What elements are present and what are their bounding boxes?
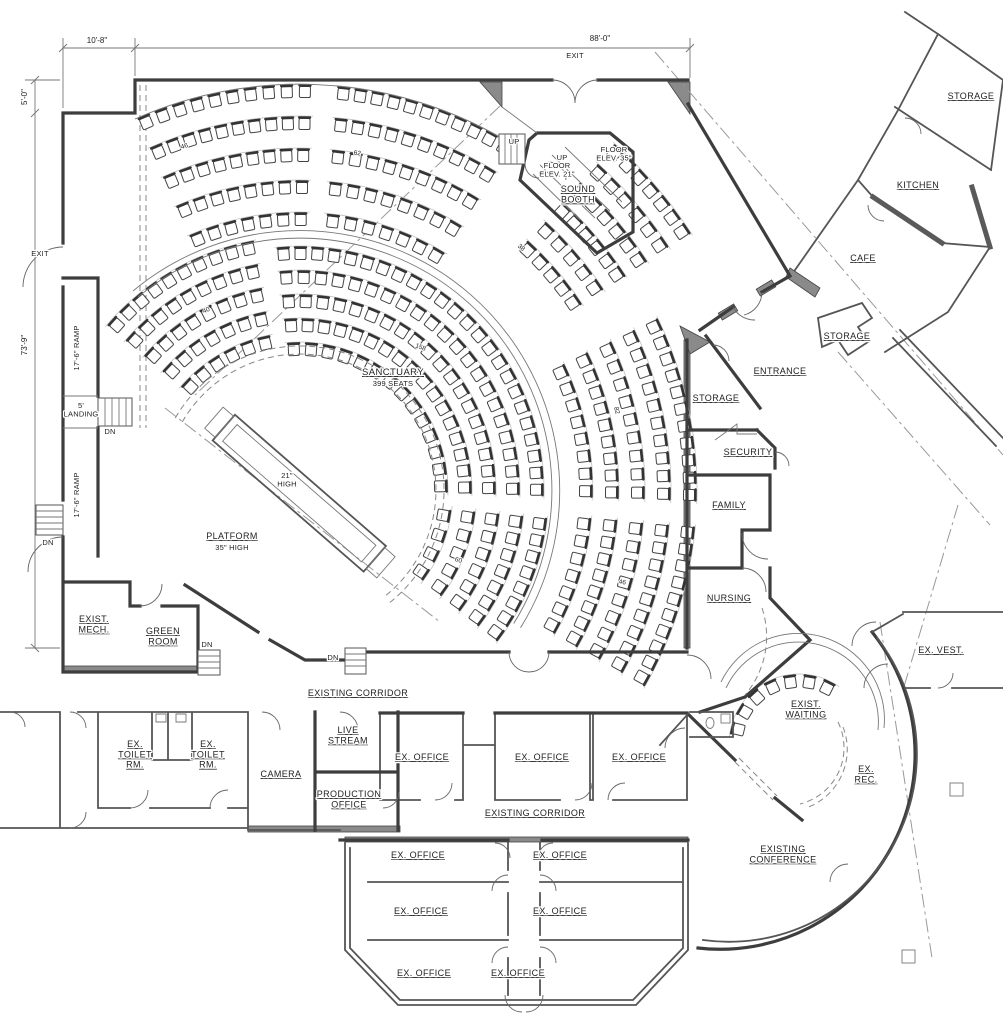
seat bbox=[399, 165, 413, 180]
seat bbox=[597, 627, 613, 642]
seat bbox=[171, 324, 187, 340]
seat bbox=[225, 246, 239, 261]
label-dn-green: DN bbox=[201, 640, 212, 649]
seat bbox=[656, 452, 669, 464]
label-platform: PLATFORM bbox=[206, 531, 258, 541]
seat bbox=[644, 576, 658, 590]
seat bbox=[449, 151, 464, 167]
label-office-4: EX. OFFICE bbox=[391, 850, 445, 860]
seat bbox=[207, 226, 221, 241]
label-camera: CAMERA bbox=[261, 769, 302, 779]
seat bbox=[249, 120, 261, 133]
label-corridor-west: EXISTING CORRIDOR bbox=[308, 688, 408, 698]
seat bbox=[436, 509, 450, 522]
seat bbox=[559, 382, 574, 397]
seat bbox=[281, 150, 292, 162]
seat bbox=[379, 226, 393, 241]
seat bbox=[550, 236, 566, 252]
seat bbox=[612, 593, 627, 607]
seat bbox=[616, 193, 632, 209]
label-ex-rec: EX.REC. bbox=[854, 764, 877, 784]
security-counter bbox=[715, 424, 757, 440]
seat bbox=[151, 144, 166, 159]
seat bbox=[587, 585, 602, 599]
seat bbox=[354, 89, 367, 103]
seat bbox=[437, 326, 453, 342]
seat bbox=[433, 144, 448, 159]
seat bbox=[158, 335, 174, 351]
seat bbox=[600, 343, 615, 358]
seat bbox=[636, 364, 651, 378]
label-floor-elev-21: FLOORELEV. 21" bbox=[539, 161, 575, 179]
seat bbox=[657, 488, 669, 499]
label-exit-left: EXIT bbox=[31, 249, 49, 258]
seat bbox=[295, 213, 306, 225]
seat bbox=[577, 450, 590, 462]
stair-landing bbox=[98, 398, 132, 426]
seat bbox=[326, 215, 338, 228]
seat bbox=[605, 610, 620, 625]
seat bbox=[630, 348, 645, 363]
label-up-a: UP bbox=[509, 137, 520, 146]
label-entrance: ENTRANCE bbox=[754, 366, 807, 376]
label-nursing: NURSING bbox=[707, 593, 751, 603]
label-dn-center: DN bbox=[327, 653, 338, 662]
seat bbox=[494, 564, 509, 579]
seat bbox=[260, 215, 272, 228]
label-sanctuary: SANCTUARY bbox=[362, 367, 424, 378]
stair-southwest bbox=[36, 505, 63, 535]
label-sanctuary-seats: 399 SEATS bbox=[373, 379, 413, 388]
count-lower-center: 60 bbox=[454, 556, 463, 565]
seat bbox=[619, 395, 633, 409]
seat bbox=[296, 181, 307, 193]
seat bbox=[667, 592, 682, 606]
seat bbox=[213, 158, 227, 172]
seat bbox=[332, 151, 344, 164]
seat bbox=[603, 453, 616, 465]
seat bbox=[215, 125, 228, 139]
seat bbox=[640, 222, 656, 238]
label-storage-ne: STORAGE bbox=[948, 91, 995, 101]
seat bbox=[574, 535, 588, 548]
seat bbox=[603, 519, 616, 531]
seat bbox=[344, 252, 357, 266]
seat bbox=[302, 319, 314, 331]
seat bbox=[299, 117, 310, 129]
label-office-1: EX. OFFICE bbox=[395, 752, 449, 762]
seat bbox=[315, 272, 327, 285]
seat bbox=[370, 92, 383, 106]
platform bbox=[202, 406, 396, 581]
seat bbox=[601, 435, 615, 448]
seat bbox=[443, 369, 459, 385]
seat bbox=[570, 415, 584, 429]
seat bbox=[364, 334, 379, 350]
seat bbox=[300, 295, 311, 307]
seat bbox=[316, 296, 328, 309]
seat bbox=[366, 156, 379, 170]
seat bbox=[469, 609, 485, 625]
seat bbox=[109, 317, 125, 333]
seat bbox=[329, 183, 341, 196]
label-live-stream: LIVESTREAM bbox=[328, 725, 368, 745]
seat bbox=[191, 232, 206, 247]
seat bbox=[457, 465, 470, 477]
sink-fixture-waiting bbox=[721, 714, 730, 723]
dim-left-overall: 73'-9" bbox=[20, 335, 29, 356]
label-landing: 5'LANDING bbox=[64, 401, 99, 419]
seat bbox=[368, 124, 381, 138]
label-family: FAMILY bbox=[712, 500, 746, 510]
seat bbox=[520, 416, 535, 430]
wall-poche bbox=[63, 82, 820, 842]
seat bbox=[332, 274, 345, 288]
seat bbox=[530, 467, 543, 479]
seat bbox=[285, 319, 297, 332]
seat bbox=[456, 529, 471, 543]
seat bbox=[629, 450, 642, 462]
seat bbox=[646, 399, 660, 412]
seat bbox=[121, 305, 137, 321]
seat bbox=[607, 360, 622, 375]
seat bbox=[259, 336, 272, 350]
seat bbox=[493, 414, 508, 428]
seat bbox=[508, 515, 521, 528]
seat bbox=[396, 232, 411, 247]
corridor-sill-poche bbox=[248, 826, 400, 832]
seat bbox=[605, 487, 617, 498]
seat bbox=[299, 85, 310, 97]
seat bbox=[391, 267, 406, 282]
seat bbox=[487, 397, 502, 412]
seat bbox=[459, 315, 475, 331]
label-floor-elev-35: FLOORELEV. 35" bbox=[596, 145, 632, 163]
seat bbox=[263, 86, 275, 99]
label-office-8: EX. OFFICE bbox=[397, 968, 451, 978]
seat bbox=[628, 207, 644, 223]
stair-run-green bbox=[198, 650, 220, 675]
seat bbox=[633, 609, 648, 623]
stair-run-landing bbox=[98, 398, 132, 426]
seat bbox=[232, 122, 245, 136]
seat bbox=[784, 675, 797, 688]
label-platform-height: 35" HIGH bbox=[215, 543, 248, 552]
seat bbox=[282, 118, 293, 130]
seat bbox=[603, 179, 619, 195]
seat bbox=[380, 289, 395, 304]
corner-poche-lobby bbox=[480, 82, 502, 107]
office-wing-walls bbox=[345, 843, 688, 1005]
seat bbox=[631, 487, 643, 498]
seat bbox=[683, 489, 695, 500]
seat bbox=[387, 95, 401, 109]
seat bbox=[173, 103, 187, 118]
toilet-fixtures bbox=[156, 714, 186, 722]
corner-poche-ne bbox=[668, 82, 690, 114]
seat bbox=[481, 465, 494, 477]
seat bbox=[532, 254, 548, 270]
seat bbox=[401, 132, 415, 147]
seat bbox=[431, 528, 446, 542]
seat bbox=[362, 221, 376, 235]
seat bbox=[334, 119, 346, 132]
seat bbox=[803, 675, 816, 689]
label-office-5: EX. OFFICE bbox=[533, 850, 587, 860]
seat bbox=[532, 517, 545, 530]
seat bbox=[639, 592, 654, 606]
label-storage-entry: STORAGE bbox=[824, 331, 871, 341]
seat bbox=[191, 98, 205, 112]
seat bbox=[311, 248, 323, 261]
seat bbox=[554, 203, 570, 219]
seat bbox=[337, 87, 349, 100]
label-exist-mech: EXIST.MECH. bbox=[79, 614, 110, 634]
seat bbox=[642, 183, 658, 199]
stair-run-center bbox=[345, 648, 366, 674]
seat bbox=[665, 369, 680, 383]
seat bbox=[605, 470, 618, 482]
seat bbox=[217, 299, 232, 314]
dim-top-overall: 88'-0" bbox=[590, 34, 611, 43]
seat bbox=[500, 548, 515, 562]
seat bbox=[295, 247, 306, 259]
label-ex-vest: EX. VEST. bbox=[918, 645, 964, 655]
seat bbox=[196, 162, 210, 177]
seat bbox=[631, 468, 644, 480]
seat bbox=[209, 251, 223, 266]
seat bbox=[344, 217, 357, 231]
seat bbox=[333, 299, 346, 313]
seat bbox=[598, 419, 612, 432]
seat bbox=[164, 173, 179, 188]
seat bbox=[449, 432, 464, 446]
column-marker-a bbox=[950, 783, 963, 796]
seat bbox=[474, 431, 489, 445]
storage-entry-walls bbox=[818, 303, 872, 355]
seat bbox=[431, 178, 446, 193]
seat bbox=[245, 88, 257, 101]
seat bbox=[574, 616, 590, 631]
seat bbox=[348, 277, 362, 291]
seat bbox=[670, 385, 684, 399]
seat bbox=[485, 513, 499, 526]
seat bbox=[134, 293, 150, 309]
seat bbox=[566, 215, 582, 231]
seat bbox=[152, 309, 168, 325]
seat bbox=[195, 367, 211, 383]
seat bbox=[230, 155, 243, 169]
seat bbox=[765, 680, 780, 696]
seat bbox=[383, 160, 397, 175]
seat bbox=[139, 115, 154, 130]
seat bbox=[513, 581, 528, 596]
dim-left-offset: 5'-0" bbox=[20, 89, 29, 105]
stair-south-center bbox=[345, 648, 366, 674]
seat bbox=[221, 323, 236, 338]
label-ramp-upper: 17'-6" RAMP bbox=[72, 325, 81, 370]
seat bbox=[655, 624, 670, 639]
ne-wing-walls bbox=[795, 12, 1003, 446]
label-toilet-b: EX.TOILETRM. bbox=[191, 739, 225, 770]
floor-plan-drawing: 10'-8" 88'-0" 5'-0" 73'-9" EXIT EXIT UP … bbox=[0, 0, 1003, 1024]
seat bbox=[443, 416, 458, 431]
label-exit-top: EXIT bbox=[566, 51, 584, 60]
seat bbox=[475, 547, 490, 561]
label-exist-waiting: EXIST.WAITING bbox=[786, 699, 827, 719]
seat bbox=[199, 129, 213, 143]
label-office-3: EX. OFFICE bbox=[612, 752, 666, 762]
platform-inner bbox=[223, 425, 376, 562]
seat bbox=[622, 558, 636, 571]
seat bbox=[145, 348, 161, 364]
seat bbox=[514, 400, 529, 415]
seat bbox=[213, 275, 228, 290]
count-right: 82 bbox=[612, 406, 621, 415]
seat bbox=[156, 108, 170, 123]
seat bbox=[529, 534, 543, 547]
seat bbox=[244, 185, 257, 199]
seating-edge-dashed bbox=[140, 85, 146, 428]
seat bbox=[277, 214, 289, 227]
seat bbox=[597, 210, 613, 226]
seat bbox=[247, 152, 260, 165]
column-marker-b bbox=[902, 950, 915, 963]
seat bbox=[224, 221, 238, 235]
seat bbox=[531, 484, 543, 495]
seat bbox=[507, 384, 522, 399]
seat bbox=[506, 483, 518, 494]
seat bbox=[503, 448, 517, 461]
seat bbox=[139, 320, 155, 336]
label-dn-sw: DN bbox=[42, 538, 53, 547]
seat bbox=[328, 249, 341, 262]
seat bbox=[413, 205, 428, 220]
door-swings bbox=[10, 80, 953, 1012]
seat bbox=[226, 90, 239, 104]
seat bbox=[262, 183, 274, 196]
seat bbox=[661, 608, 676, 622]
seat bbox=[650, 417, 664, 430]
seat bbox=[449, 339, 465, 355]
seat bbox=[447, 303, 463, 319]
seat bbox=[376, 261, 391, 276]
seat bbox=[318, 321, 331, 334]
seat bbox=[349, 328, 363, 343]
seat bbox=[432, 356, 448, 372]
seat bbox=[281, 86, 292, 98]
seat bbox=[597, 552, 611, 565]
seat bbox=[417, 138, 431, 153]
seat bbox=[629, 522, 642, 534]
seat bbox=[242, 218, 255, 232]
seat bbox=[482, 483, 494, 494]
seat bbox=[481, 530, 495, 544]
seat bbox=[579, 486, 591, 497]
seat bbox=[279, 182, 291, 195]
seat bbox=[468, 415, 483, 430]
seat bbox=[458, 482, 470, 493]
label-security: SECURITY bbox=[724, 447, 773, 457]
seat bbox=[581, 600, 596, 615]
seat bbox=[576, 354, 591, 369]
stair-greenroom bbox=[198, 650, 220, 675]
seat bbox=[499, 431, 513, 445]
seat bbox=[543, 267, 559, 283]
seat bbox=[505, 532, 519, 545]
seat bbox=[210, 192, 224, 207]
seat bbox=[182, 379, 198, 395]
seat bbox=[298, 271, 309, 283]
dim-top-offset: 10'-8" bbox=[87, 36, 108, 45]
seat bbox=[349, 303, 363, 318]
seat bbox=[351, 121, 364, 135]
seat bbox=[575, 265, 591, 281]
seat bbox=[519, 565, 534, 579]
seat bbox=[424, 315, 440, 331]
label-office-9: EX. OFFICE bbox=[491, 968, 545, 978]
seat bbox=[385, 128, 399, 142]
seat bbox=[454, 448, 468, 461]
label-office-2: EX. OFFICE bbox=[515, 752, 569, 762]
seat bbox=[600, 536, 614, 549]
seat bbox=[577, 518, 590, 530]
seat bbox=[460, 511, 474, 524]
seat bbox=[646, 320, 661, 335]
seat bbox=[627, 431, 641, 444]
seat bbox=[250, 289, 263, 303]
seat bbox=[598, 253, 614, 269]
seat bbox=[435, 110, 450, 125]
seat bbox=[525, 550, 540, 564]
seat bbox=[334, 323, 348, 337]
seat bbox=[626, 540, 640, 553]
seat bbox=[180, 168, 194, 183]
seat bbox=[659, 352, 674, 366]
seat bbox=[254, 313, 267, 327]
seat bbox=[653, 336, 668, 351]
seat bbox=[423, 546, 439, 561]
seat bbox=[505, 465, 518, 477]
seat bbox=[364, 308, 379, 323]
seat bbox=[127, 332, 143, 348]
seat bbox=[346, 185, 359, 199]
seat bbox=[192, 257, 207, 272]
seat bbox=[208, 94, 221, 108]
label-kitchen: KITCHEN bbox=[897, 180, 939, 190]
label-cafe: CAFE bbox=[850, 253, 876, 263]
seat bbox=[381, 193, 395, 208]
seat bbox=[613, 377, 628, 391]
seat bbox=[167, 138, 181, 153]
seat bbox=[419, 105, 433, 120]
stair-run-sw bbox=[36, 505, 63, 535]
seat bbox=[164, 363, 180, 379]
seat bbox=[283, 295, 295, 308]
seat bbox=[246, 265, 259, 279]
count-upper-center: 62 bbox=[353, 150, 362, 158]
seat bbox=[623, 331, 638, 346]
seat bbox=[298, 149, 309, 161]
seat bbox=[593, 402, 607, 416]
label-office-7: EX. OFFICE bbox=[533, 906, 587, 916]
seat bbox=[653, 196, 669, 212]
seat bbox=[364, 189, 377, 203]
seat bbox=[360, 256, 374, 271]
seat bbox=[364, 282, 378, 297]
seat bbox=[403, 100, 417, 115]
seat bbox=[553, 365, 568, 380]
